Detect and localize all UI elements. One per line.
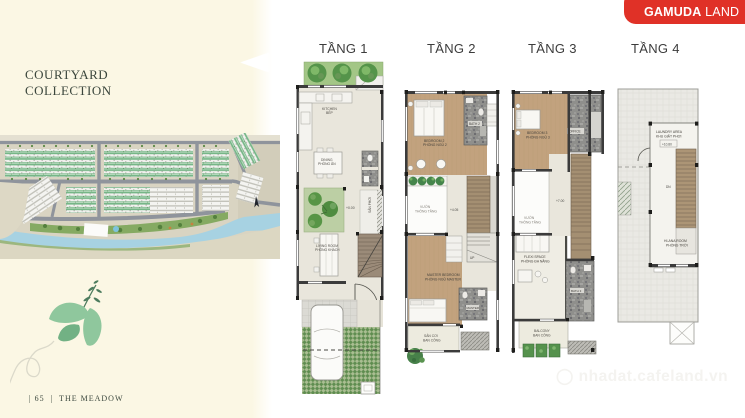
svg-text:THÔNG TẦNG: THÔNG TẦNG [415, 209, 437, 214]
svg-text:BEDROOM 3: BEDROOM 3 [527, 131, 547, 135]
svg-text:VƯỜN: VƯỜN [420, 204, 431, 209]
svg-text:PHÒNG NGỦ MASTER: PHÒNG NGỦ MASTER [425, 277, 462, 282]
svg-text:MASTER: MASTER [467, 306, 480, 310]
svg-text:BAN CÔNG: BAN CÔNG [533, 333, 551, 338]
svg-text:BATH 3: BATH 3 [571, 289, 582, 293]
svg-text:DN: DN [666, 185, 671, 189]
svg-text:+0.00: +0.00 [346, 206, 355, 210]
svg-text:BALCONY: BALCONY [534, 329, 551, 333]
svg-text:PHÒNG NGỦ 2: PHÒNG NGỦ 2 [423, 142, 447, 147]
svg-text:OFFICE: OFFICE [569, 130, 581, 134]
svg-text:BẾP: BẾP [326, 110, 334, 115]
svg-text:+7.00: +7.00 [556, 199, 565, 203]
svg-text:HI-ANA ROOM: HI-ANA ROOM [664, 239, 687, 243]
svg-text:PHÒNG KHÁCH: PHÒNG KHÁCH [315, 247, 340, 252]
svg-text:+10.80: +10.80 [662, 142, 672, 146]
svg-text:KHU GIẶT PHƠI: KHU GIẶT PHƠI [656, 135, 682, 139]
svg-text:SÂN PHƠI: SÂN PHƠI [368, 197, 372, 213]
svg-text:BAN CÔNG: BAN CÔNG [423, 338, 441, 343]
svg-text:BATH 2: BATH 2 [469, 122, 480, 126]
svg-text:FLEXI SPACE: FLEXI SPACE [524, 255, 546, 259]
svg-text:PHÒNG ĐA NĂNG: PHÒNG ĐA NĂNG [521, 259, 550, 264]
svg-text:SÂN CƠI: SÂN CƠI [424, 334, 438, 338]
svg-text:VƯỜN: VƯỜN [524, 215, 535, 220]
svg-text:UP: UP [470, 256, 474, 260]
svg-text:PHÒNG ĂN: PHÒNG ĂN [318, 161, 336, 166]
svg-text:PHÒNG TRỜI: PHÒNG TRỜI [666, 243, 688, 248]
svg-text:PHÒNG NGỦ 3: PHÒNG NGỦ 3 [526, 135, 550, 140]
svg-text:LAUNDRY AREA: LAUNDRY AREA [656, 130, 683, 134]
svg-text:THÔNG TẦNG: THÔNG TẦNG [519, 220, 541, 225]
svg-text:MASTER BEDROOM: MASTER BEDROOM [427, 273, 460, 277]
svg-text:+4.05: +4.05 [450, 208, 459, 212]
